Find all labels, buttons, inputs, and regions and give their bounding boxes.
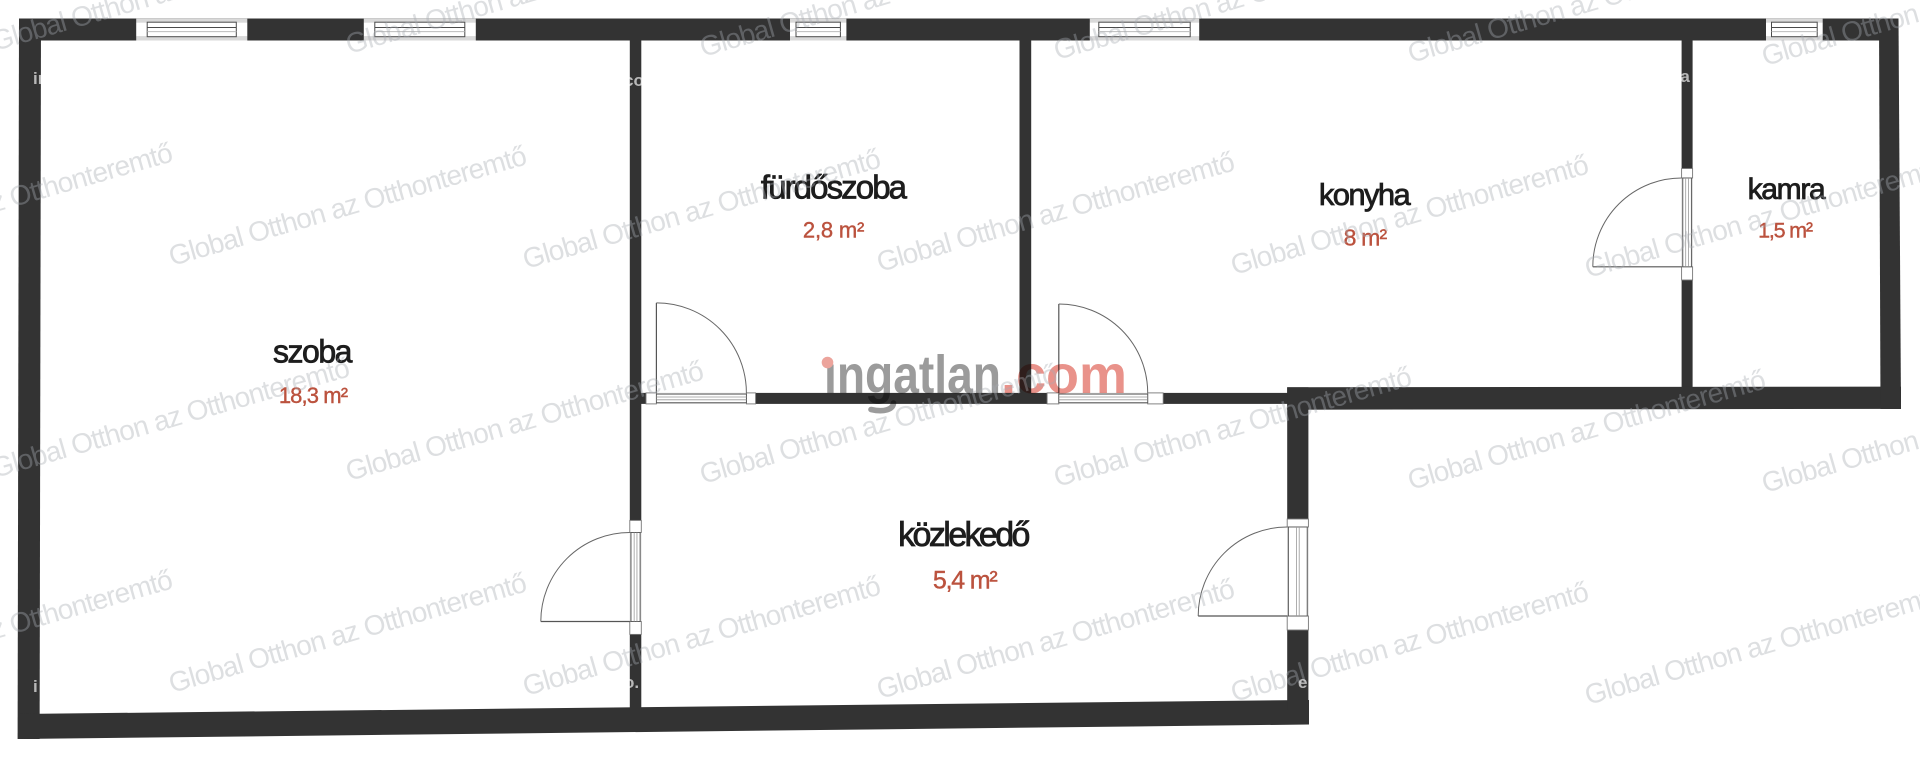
svg-text:e: e bbox=[1298, 673, 1307, 692]
svg-text:5,4 m²: 5,4 m² bbox=[933, 567, 998, 595]
svg-text:co: co bbox=[624, 71, 644, 90]
svg-text:o.: o. bbox=[624, 673, 639, 692]
svg-text:közlekedő: közlekedő bbox=[898, 516, 1029, 554]
svg-text:i: i bbox=[33, 677, 38, 696]
svg-text:2,8 m²: 2,8 m² bbox=[803, 218, 864, 243]
svg-text:in: in bbox=[33, 69, 48, 88]
svg-text:tla: tla bbox=[1670, 67, 1690, 86]
